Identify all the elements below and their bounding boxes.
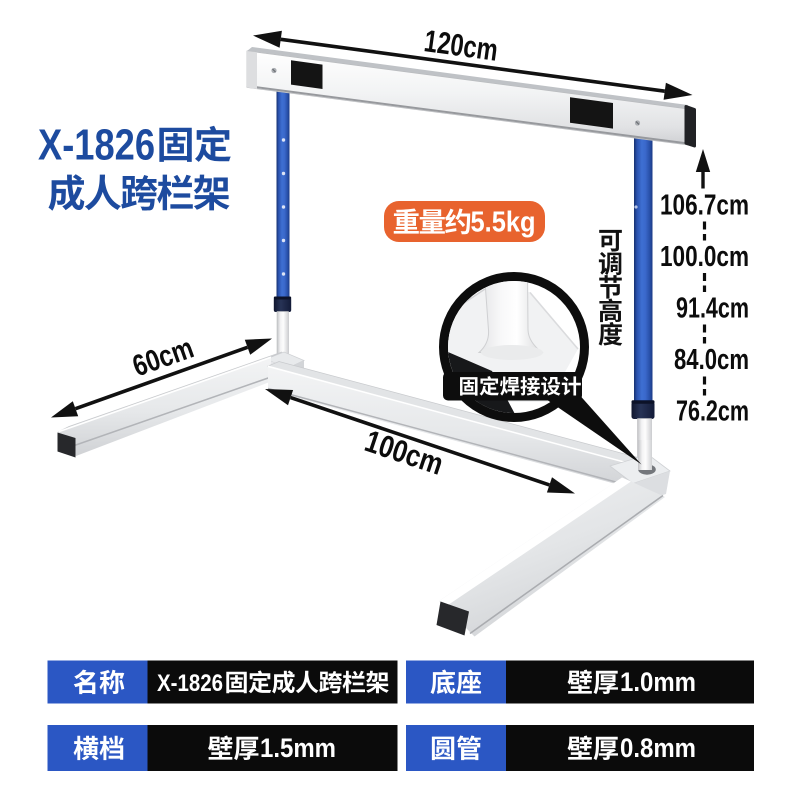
svg-text:0.8mm: 0.8mm — [620, 733, 696, 763]
svg-text:5.5kg: 5.5kg — [471, 207, 536, 239]
svg-text:76.2cm: 76.2cm — [676, 396, 749, 428]
svg-text:X-1826: X-1826 — [38, 121, 155, 170]
svg-text:91.4cm: 91.4cm — [676, 293, 749, 325]
svg-text:1.0mm: 1.0mm — [620, 667, 696, 697]
svg-text:100.0cm: 100.0cm — [660, 241, 749, 273]
svg-text:1.5mm: 1.5mm — [260, 733, 336, 763]
svg-text:106.7cm: 106.7cm — [660, 190, 749, 222]
svg-text:X-1826: X-1826 — [157, 670, 223, 697]
svg-text:84.0cm: 84.0cm — [674, 344, 749, 376]
